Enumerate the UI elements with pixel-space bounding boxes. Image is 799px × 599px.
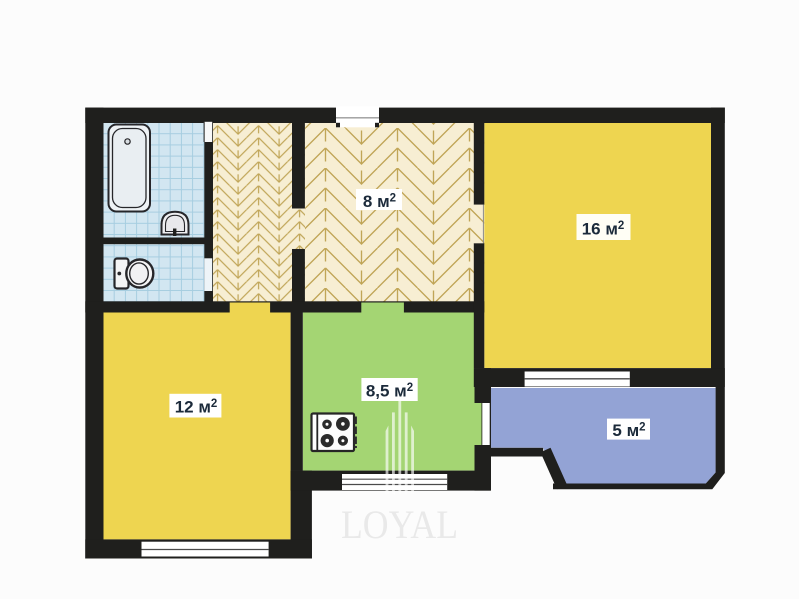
svg-text:LOYAL: LOYAL [341, 502, 458, 547]
svg-text:8,5 м2: 8,5 м2 [366, 382, 413, 401]
